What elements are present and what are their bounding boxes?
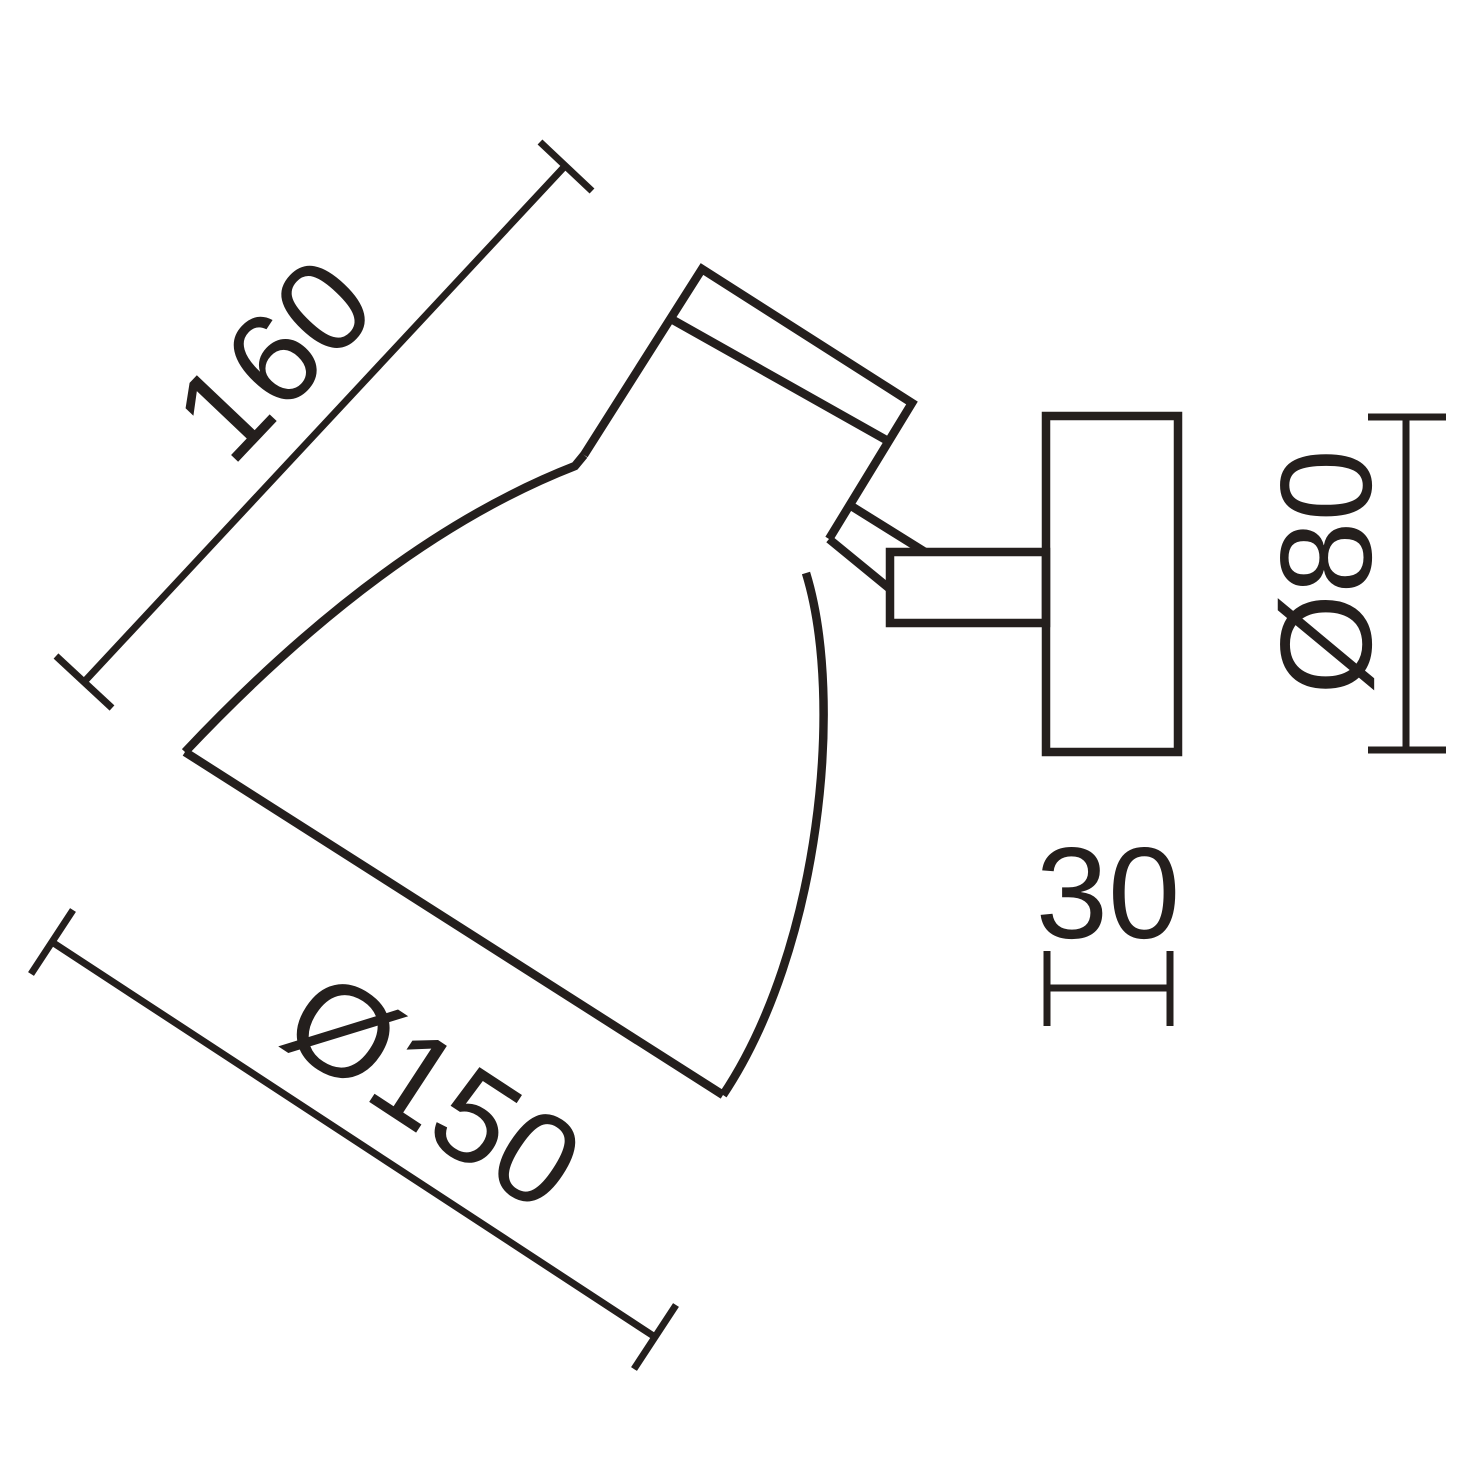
wall-mount-base — [1046, 416, 1178, 752]
lamp-neck-cap-line — [673, 320, 888, 441]
swivel-arm-bottom-edge — [829, 539, 890, 589]
dim-shade-diameter-tick-start — [31, 910, 73, 974]
dim-shade-length-line — [84, 166, 565, 682]
dim-shade-diameter: Ø150 — [31, 910, 676, 1369]
dim-shade-length-label: 160 — [146, 230, 401, 488]
mount-plate — [890, 552, 1046, 623]
shade-right-profile — [723, 573, 824, 1095]
spotlight-dimension-drawing: 160 Ø150 Ø80 30 — [0, 0, 1476, 1476]
swivel-arm-top-edge — [848, 504, 925, 552]
dim-base-diameter-label: Ø80 — [1253, 449, 1399, 695]
dim-base-diameter: Ø80 — [1253, 417, 1446, 750]
dim-base-depth: 30 — [1036, 820, 1181, 1026]
dimension-drawing-canvas: 160 Ø150 Ø80 30 — [0, 0, 1476, 1476]
shade-left-profile — [185, 455, 584, 752]
dim-base-depth-label: 30 — [1036, 820, 1181, 966]
dim-shade-diameter-tick-end — [634, 1305, 676, 1369]
lamp-neck-outline — [584, 269, 912, 539]
